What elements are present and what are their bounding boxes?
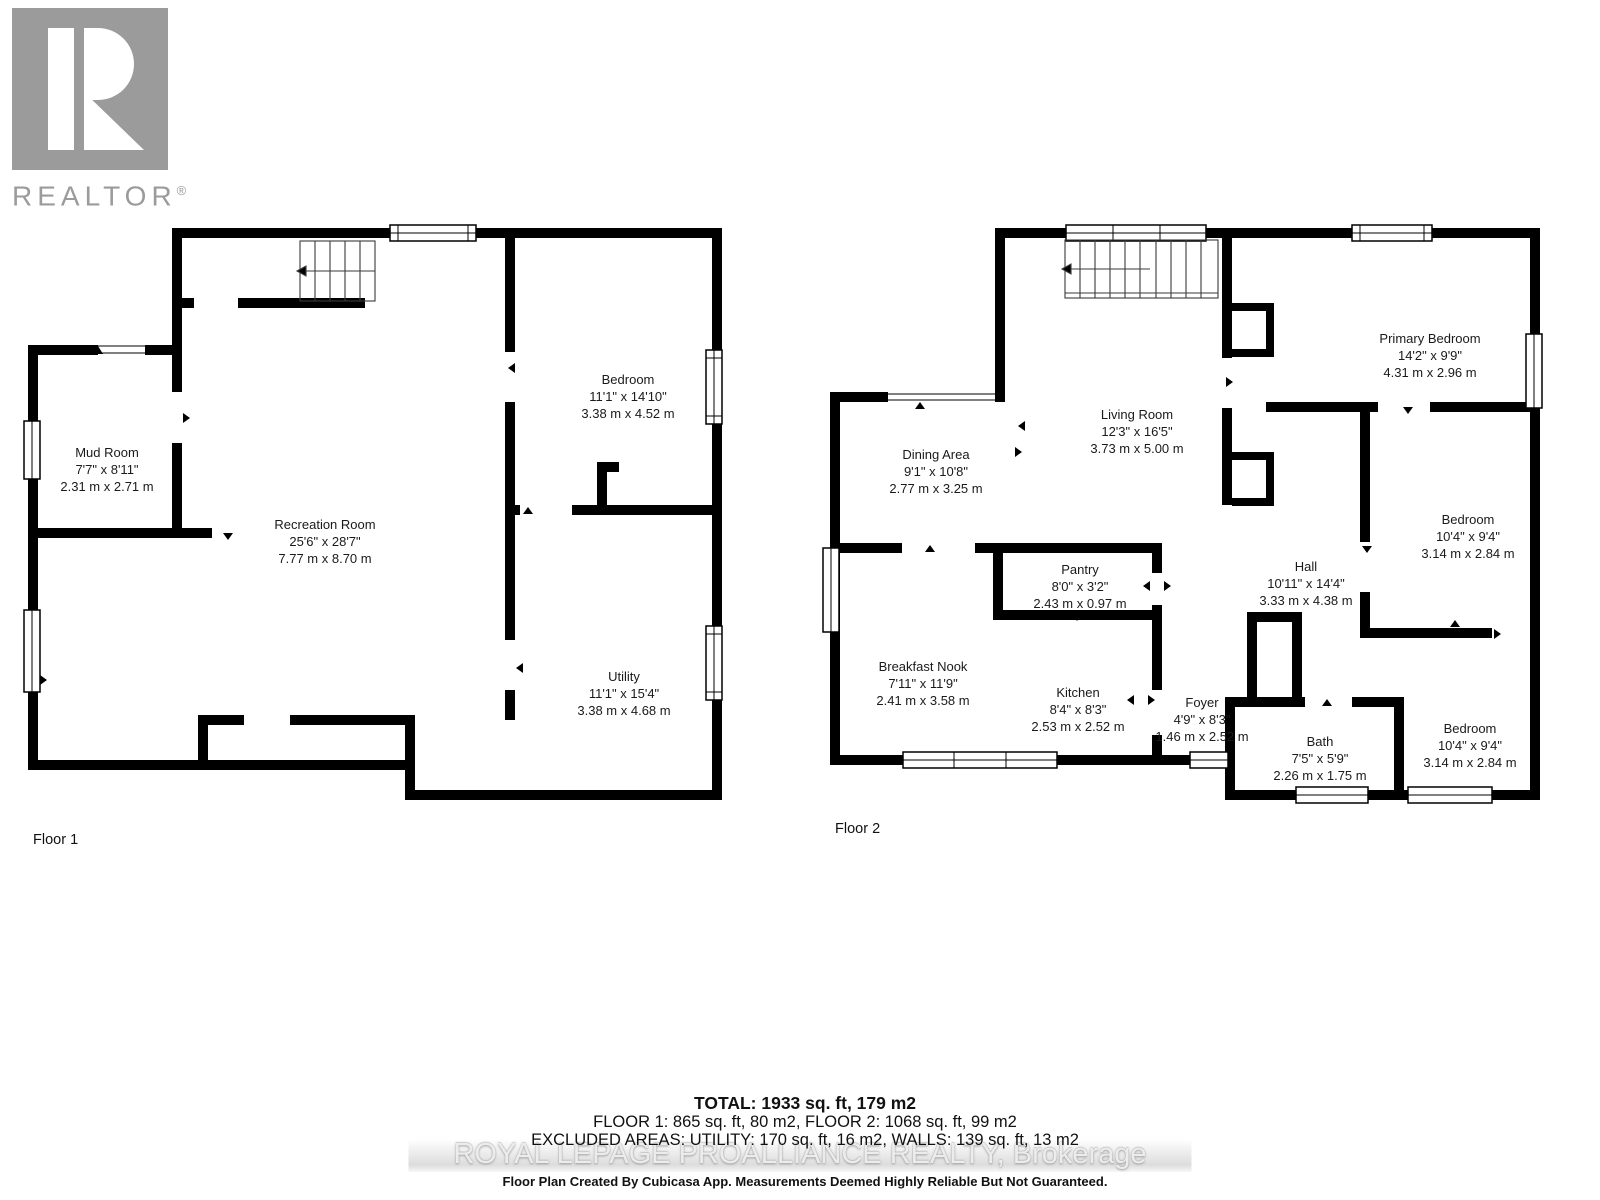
room-dims-metric: 2.41 m x 3.58 m <box>876 692 969 709</box>
room-dims-metric: 2.26 m x 1.75 m <box>1273 767 1366 784</box>
room-dims-imperial: 10'4" x 9'4" <box>1423 737 1516 754</box>
room-name: Living Room <box>1090 406 1183 423</box>
floor2-label: Floor 2 <box>835 821 880 837</box>
room-label-pantry: Pantry 8'0" x 3'2" 2.43 m x 0.97 m <box>1033 561 1126 612</box>
floor1-stairs <box>297 241 375 301</box>
room-name: Primary Bedroom <box>1379 330 1480 347</box>
floorplan-canvas: REALTOR® Mud Room 7'7" x 8'11" 2.31 m x … <box>0 0 1600 1200</box>
room-label-utility: Utility 11'1" x 15'4" 3.38 m x 4.68 m <box>577 668 670 719</box>
room-name: Foyer <box>1155 694 1248 711</box>
room-dims-metric: 3.33 m x 4.38 m <box>1259 592 1352 609</box>
room-label-kitchen: Kitchen 8'4" x 8'3" 2.53 m x 2.52 m <box>1031 684 1124 735</box>
room-name: Bedroom <box>581 371 674 388</box>
summary-excluded: EXCLUDED AREAS: UTILITY: 170 sq. ft, 16 … <box>531 1131 1079 1150</box>
room-label-living-room: Living Room 12'3" x 16'5" 3.73 m x 5.00 … <box>1090 406 1183 457</box>
room-dims-imperial: 14'2" x 9'9" <box>1379 347 1480 364</box>
room-name: Utility <box>577 668 670 685</box>
floor2-stairs <box>1062 240 1218 298</box>
realtor-logo-icon <box>12 8 168 170</box>
room-dims-imperial: 4'9" x 8'3" <box>1155 711 1248 728</box>
room-dims-metric: 4.31 m x 2.96 m <box>1379 364 1480 381</box>
room-name: Bedroom <box>1421 511 1514 528</box>
room-dims-imperial: 11'1" x 14'10" <box>581 388 674 405</box>
room-dims-metric: 3.38 m x 4.52 m <box>581 405 674 422</box>
room-label-bath: Bath 7'5" x 5'9" 2.26 m x 1.75 m <box>1273 733 1366 784</box>
room-dims-metric: 7.77 m x 8.70 m <box>274 550 375 567</box>
room-name: Kitchen <box>1031 684 1124 701</box>
room-dims-imperial: 8'4" x 8'3" <box>1031 701 1124 718</box>
room-dims-metric: 3.73 m x 5.00 m <box>1090 440 1183 457</box>
room-label-hall: Hall 10'11" x 14'4" 3.33 m x 4.38 m <box>1259 558 1352 609</box>
room-label-bedroom-f1: Bedroom 11'1" x 14'10" 3.38 m x 4.52 m <box>581 371 674 422</box>
room-name: Bath <box>1273 733 1366 750</box>
room-name: Breakfast Nook <box>876 658 969 675</box>
room-dims-metric: 3.14 m x 2.84 m <box>1421 545 1514 562</box>
room-dims-metric: 3.14 m x 2.84 m <box>1423 754 1516 771</box>
room-dims-imperial: 11'1" x 15'4" <box>577 685 670 702</box>
room-label-dining-area: Dining Area 9'1" x 10'8" 2.77 m x 3.25 m <box>889 446 982 497</box>
room-label-foyer: Foyer 4'9" x 8'3" 1.46 m x 2.52 m <box>1155 694 1248 745</box>
room-dims-metric: 1.46 m x 2.52 m <box>1155 728 1248 745</box>
room-dims-imperial: 7'11" x 11'9" <box>876 675 969 692</box>
room-dims-metric: 2.77 m x 3.25 m <box>889 480 982 497</box>
summary-floors: FLOOR 1: 865 sq. ft, 80 m2, FLOOR 2: 106… <box>593 1113 1017 1132</box>
room-dims-imperial: 10'11" x 14'4" <box>1259 575 1352 592</box>
room-dims-metric: 3.38 m x 4.68 m <box>577 702 670 719</box>
realtor-logo-text: REALTOR® <box>12 176 186 211</box>
summary-total: TOTAL: 1933 sq. ft, 179 m2 <box>694 1093 916 1114</box>
floor2-door-arrows <box>915 377 1501 706</box>
room-name: Bedroom <box>1423 720 1516 737</box>
room-dims-imperial: 12'3" x 16'5" <box>1090 423 1183 440</box>
floorplan-drawing <box>0 0 1600 1200</box>
room-dims-metric: 2.43 m x 0.97 m <box>1033 595 1126 612</box>
room-label-bedroom-bottom: Bedroom 10'4" x 9'4" 3.14 m x 2.84 m <box>1423 720 1516 771</box>
room-label-recreation-room: Recreation Room 25'6" x 28'7" 7.77 m x 8… <box>274 516 375 567</box>
room-dims-imperial: 9'1" x 10'8" <box>889 463 982 480</box>
room-label-bedroom-mid: Bedroom 10'4" x 9'4" 3.14 m x 2.84 m <box>1421 511 1514 562</box>
room-dims-metric: 2.53 m x 2.52 m <box>1031 718 1124 735</box>
room-name: Dining Area <box>889 446 982 463</box>
room-dims-imperial: 10'4" x 9'4" <box>1421 528 1514 545</box>
summary-disclaimer: Floor Plan Created By Cubicasa App. Meas… <box>503 1174 1108 1189</box>
room-label-mud-room: Mud Room 7'7" x 8'11" 2.31 m x 2.71 m <box>60 444 153 495</box>
room-dims-imperial: 8'0" x 3'2" <box>1033 578 1126 595</box>
room-dims-metric: 2.31 m x 2.71 m <box>60 478 153 495</box>
room-name: Hall <box>1259 558 1352 575</box>
room-dims-imperial: 7'7" x 8'11" <box>60 461 153 478</box>
registered-mark: ® <box>177 183 187 198</box>
room-label-breakfast-nook: Breakfast Nook 7'11" x 11'9" 2.41 m x 3.… <box>876 658 969 709</box>
realtor-wordmark: REALTOR <box>12 180 177 211</box>
room-name: Pantry <box>1033 561 1126 578</box>
room-name: Mud Room <box>60 444 153 461</box>
room-dims-imperial: 7'5" x 5'9" <box>1273 750 1366 767</box>
floor1-label: Floor 1 <box>33 832 78 848</box>
room-name: Recreation Room <box>274 516 375 533</box>
room-dims-imperial: 25'6" x 28'7" <box>274 533 375 550</box>
realtor-logo: REALTOR® <box>12 8 186 211</box>
room-label-primary-bedroom: Primary Bedroom 14'2" x 9'9" 4.31 m x 2.… <box>1379 330 1480 381</box>
